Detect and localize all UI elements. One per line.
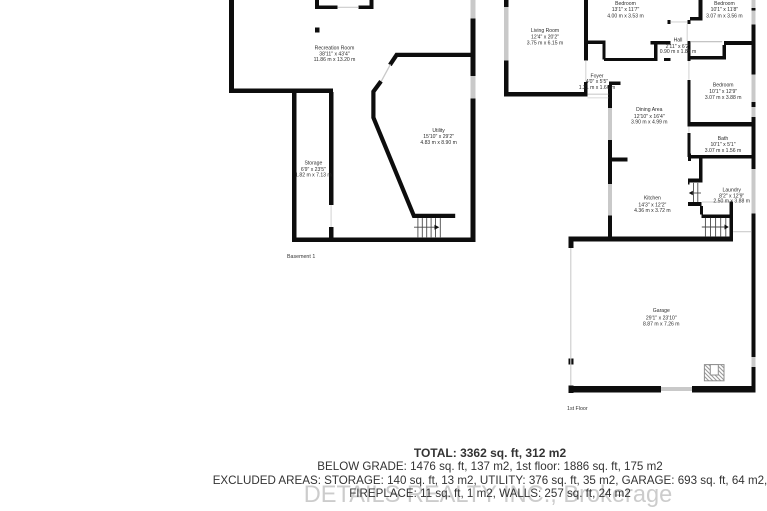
- svg-text:3.07 m x 3.56 m: 3.07 m x 3.56 m: [706, 13, 743, 19]
- svg-text:Recreation Room: Recreation Room: [315, 46, 355, 52]
- svg-text:Dining Area: Dining Area: [636, 107, 663, 113]
- svg-text:1.82 m x 7.13 m: 1.82 m x 7.13 m: [295, 173, 332, 179]
- svg-text:Bedroom: Bedroom: [713, 82, 734, 88]
- svg-text:Kitchen: Kitchen: [644, 196, 661, 202]
- svg-text:29'1" x 23'10": 29'1" x 23'10": [646, 315, 677, 321]
- svg-text:1st Floor: 1st Floor: [567, 406, 588, 412]
- svg-text:2.50 m x 3.88 m: 2.50 m x 3.88 m: [713, 199, 750, 205]
- svg-text:3.07 m x 3.88 m: 3.07 m x 3.88 m: [705, 95, 742, 101]
- svg-text:11.86 m x 13.20 m: 11.86 m x 13.20 m: [314, 57, 356, 63]
- svg-text:10'1" x 12'9": 10'1" x 12'9": [709, 89, 737, 95]
- svg-text:3.07 m x 1.56 m: 3.07 m x 1.56 m: [705, 148, 742, 154]
- svg-text:Utility: Utility: [432, 128, 445, 134]
- svg-text:3.90 m x 4.99 m: 3.90 m x 4.99 m: [631, 119, 668, 125]
- svg-text:Basement 1: Basement 1: [287, 254, 315, 260]
- svg-text:Hall: Hall: [674, 38, 683, 44]
- svg-text:Bath: Bath: [718, 136, 729, 142]
- svg-text:Living Room: Living Room: [531, 28, 559, 34]
- svg-text:Bedroom: Bedroom: [615, 1, 636, 7]
- svg-text:4'0" x 5'5": 4'0" x 5'5": [586, 79, 608, 85]
- svg-text:4.36 m x 3.72 m: 4.36 m x 3.72 m: [634, 208, 671, 214]
- svg-text:4.00 m x 3.53 m: 4.00 m x 3.53 m: [607, 13, 644, 19]
- svg-text:Storage: Storage: [304, 160, 322, 166]
- svg-text:13'1" x 11'7": 13'1" x 11'7": [612, 7, 640, 13]
- svg-text:Bedroom: Bedroom: [714, 1, 735, 7]
- svg-text:0.90 m x 1.88 m: 0.90 m x 1.88 m: [660, 49, 697, 55]
- svg-text:1.21 m x 1.66 m: 1.21 m x 1.66 m: [579, 85, 616, 91]
- svg-text:Garage: Garage: [653, 308, 670, 314]
- svg-text:3.75 m x 6.15 m: 3.75 m x 6.15 m: [527, 41, 564, 47]
- svg-text:4.83 m x 8.90 m: 4.83 m x 8.90 m: [420, 140, 457, 146]
- svg-text:10'1" x 11'8": 10'1" x 11'8": [711, 7, 739, 13]
- svg-text:8.87 m x 7.26 m: 8.87 m x 7.26 m: [643, 322, 680, 328]
